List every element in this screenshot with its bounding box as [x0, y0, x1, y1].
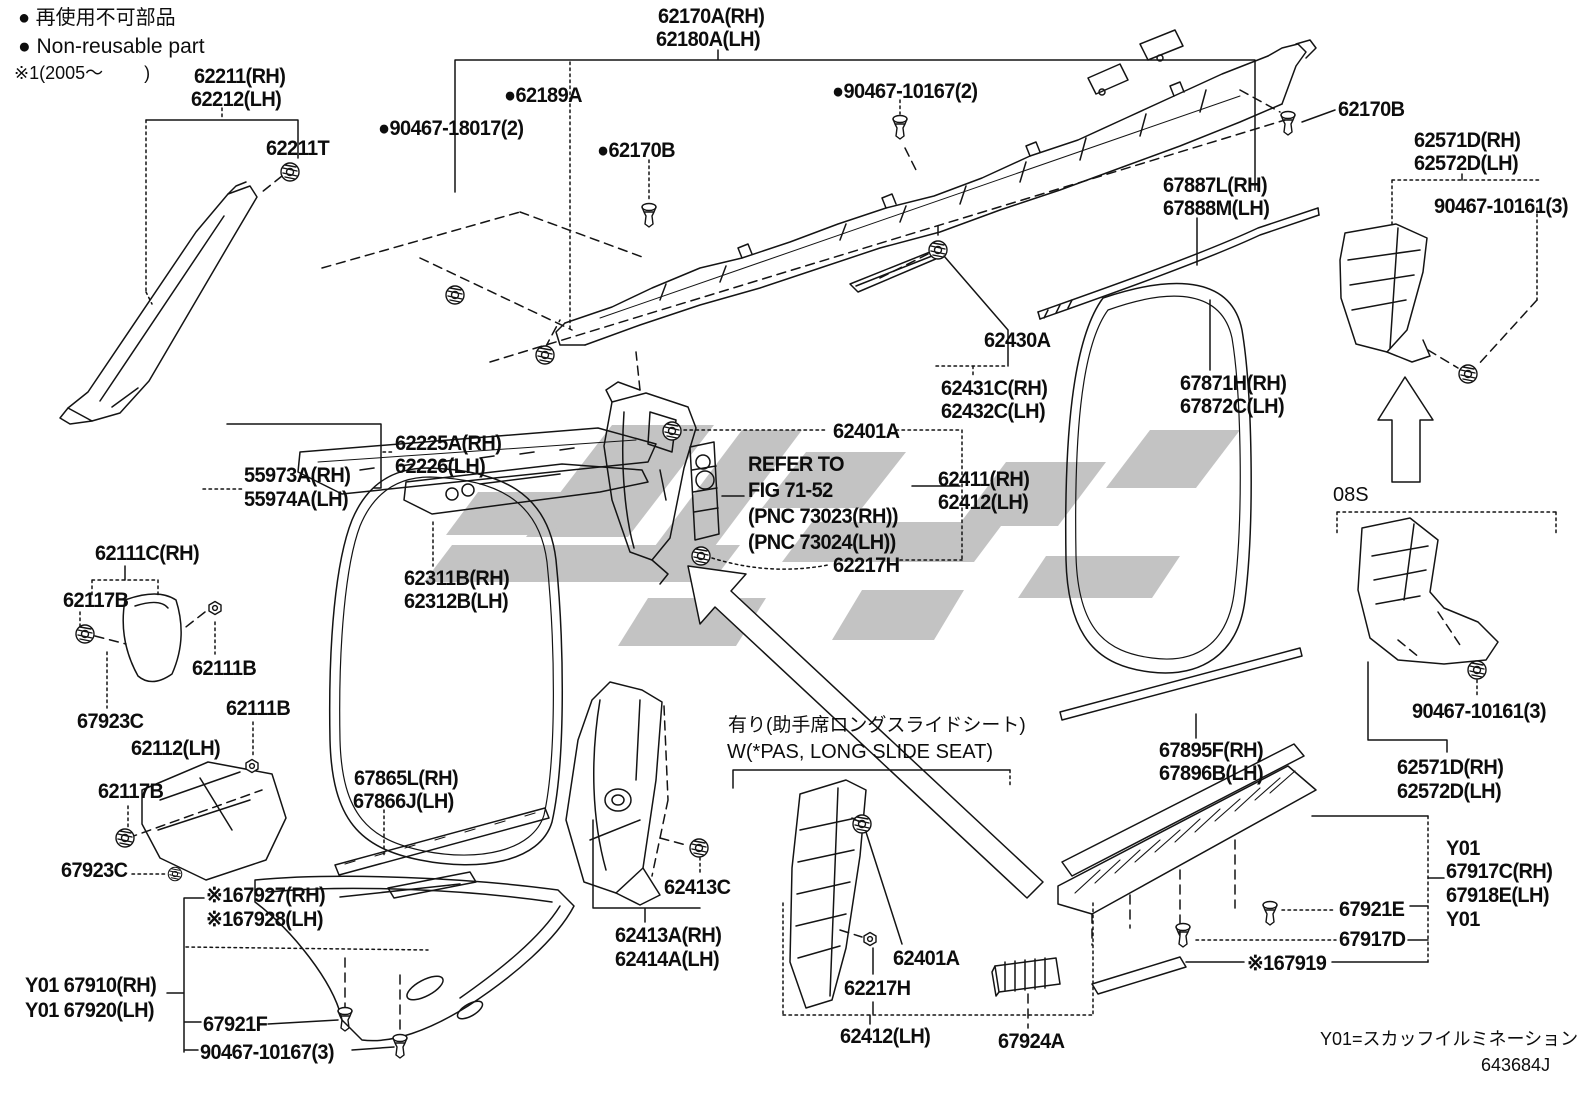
- part-y01-b: Y01: [1446, 909, 1480, 931]
- part-67896b-lh: 67896B(LH): [1159, 763, 1263, 785]
- part-55973a-rh: 55973A(RH): [244, 465, 350, 487]
- part-62170b-right: 62170B: [1338, 99, 1404, 121]
- footer-y01-note: Y01=スカッフイルミネーション: [1320, 1030, 1578, 1049]
- part-y01-a: Y01: [1446, 838, 1480, 860]
- part-62226-lh: 62226(LH): [395, 456, 485, 478]
- part-62312b-lh: 62312B(LH): [404, 591, 508, 613]
- note-long-slide-jp: 有り(助手席ロングスライドシート): [728, 716, 1026, 736]
- part-62180a-lh: 62180A(LH): [656, 29, 760, 51]
- part-90467-10167-2: ●90467-10167(2): [832, 81, 977, 103]
- part-90467-10167-3: 90467-10167(3): [200, 1042, 334, 1064]
- legend-note1: ※1(2005～ ): [14, 64, 150, 83]
- part-62432c-lh: 62432C(LH): [941, 401, 1045, 423]
- part-62412-lh-bottom: 62412(LH): [840, 1026, 930, 1048]
- legend-nonreusable-en: ● Non-reusable part: [18, 36, 205, 58]
- part-62217h-bottom: 62217H: [844, 978, 910, 1000]
- part-62217h-top: 62217H: [833, 555, 899, 577]
- part-62189a: ●62189A: [504, 85, 582, 107]
- part-62571d-rh-bottom: 62571D(RH): [1397, 757, 1503, 779]
- part-62401a-top: 62401A: [833, 421, 899, 443]
- part-62311b-rh: 62311B(RH): [404, 568, 509, 590]
- part-67872c-lh: 67872C(LH): [1180, 396, 1284, 418]
- part-62572d-lh-top: 62572D(LH): [1414, 153, 1518, 175]
- part-62414a-lh: 62414A(LH): [615, 949, 719, 971]
- part-67921e: 67921E: [1339, 899, 1404, 921]
- ref-refer-to: REFER TO: [748, 454, 844, 476]
- note-08s: 08S: [1333, 485, 1369, 506]
- ref-pnc-lh: (PNC 73024(LH)): [748, 532, 896, 554]
- part-62571d-rh-top: 62571D(RH): [1414, 130, 1520, 152]
- part-55974a-lh: 55974A(LH): [244, 489, 348, 511]
- part-62170b-left: ●62170B: [597, 140, 675, 162]
- part-62412-lh-mid: 62412(LH): [938, 492, 1028, 514]
- part-67888m-lh: 67888M(LH): [1163, 198, 1269, 220]
- part-67865l-rh: 67865L(RH): [354, 768, 458, 790]
- part-y01-67910-rh: Y01 67910(RH): [25, 975, 156, 997]
- part-62413c: 62413C: [664, 877, 730, 899]
- part-62430a: 62430A: [984, 330, 1050, 352]
- parts-diagram-canvas: ● 再使用不可部品● Non-reusable part※1(2005～ )62…: [0, 0, 1592, 1099]
- part-62431c-rh: 62431C(RH): [941, 378, 1047, 400]
- part-67917d: 67917D: [1339, 929, 1405, 951]
- part-67924a: 67924A: [998, 1031, 1064, 1053]
- part-62117b-1: 62117B: [63, 590, 128, 612]
- part-67887l-rh: 67887L(RH): [1163, 175, 1267, 197]
- note-long-slide-en: W(*PAS, LONG SLIDE SEAT): [727, 742, 993, 763]
- part-62112-lh: 62112(LH): [131, 738, 220, 760]
- part-67923c-1: 67923C: [77, 711, 143, 733]
- part-62211-rh: 62211(RH): [194, 66, 285, 88]
- part-62117b-2: 62117B: [98, 781, 163, 803]
- part-y01-67920-lh: Y01 67920(LH): [25, 1000, 154, 1022]
- part-67927-rh: ※167927(RH): [206, 885, 325, 907]
- part-67919: ※167919: [1247, 953, 1326, 975]
- part-67923c-2: 67923C: [61, 860, 127, 882]
- part-62401a-bottom: 62401A: [893, 948, 959, 970]
- part-67921f: 67921F: [203, 1014, 267, 1036]
- part-62225a-rh: 62225A(RH): [395, 433, 501, 455]
- ref-pnc-rh: (PNC 73023(RH)): [748, 506, 898, 528]
- part-62212-lh: 62212(LH): [191, 89, 281, 111]
- part-62111c-rh: 62111C(RH): [95, 543, 199, 565]
- part-62411-rh: 62411(RH): [938, 469, 1029, 491]
- part-62111b-2: 62111B: [226, 698, 290, 720]
- part-62111b-1: 62111B: [192, 658, 256, 680]
- part-90467-10161-top: 90467-10161(3): [1434, 196, 1568, 218]
- part-67918e-lh: 67918E(LH): [1446, 885, 1549, 907]
- part-67871h-rh: 67871H(RH): [1180, 373, 1286, 395]
- ref-fig: FIG 71-52: [748, 480, 833, 502]
- part-90467-10161-bottom: 90467-10161(3): [1412, 701, 1546, 723]
- part-62572d-lh-bottom: 62572D(LH): [1397, 781, 1501, 803]
- part-62413a-rh: 62413A(RH): [615, 925, 721, 947]
- part-67928-lh: ※167928(LH): [206, 909, 323, 931]
- diagram-labels: ● 再使用不可部品● Non-reusable part※1(2005～ )62…: [0, 0, 1592, 1099]
- part-67895f-rh: 67895F(RH): [1159, 740, 1263, 762]
- part-62211t: 62211T: [266, 138, 329, 160]
- part-67866j-lh: 67866J(LH): [353, 791, 454, 813]
- part-67917c-rh: 67917C(RH): [1446, 861, 1552, 883]
- footer-doc-number: 643684J: [1481, 1056, 1550, 1075]
- part-62170a-rh: 62170A(RH): [658, 6, 764, 28]
- legend-nonreusable-jp: ● 再使用不可部品: [18, 8, 176, 29]
- part-90467-18017: ●90467-18017(2): [378, 118, 523, 140]
